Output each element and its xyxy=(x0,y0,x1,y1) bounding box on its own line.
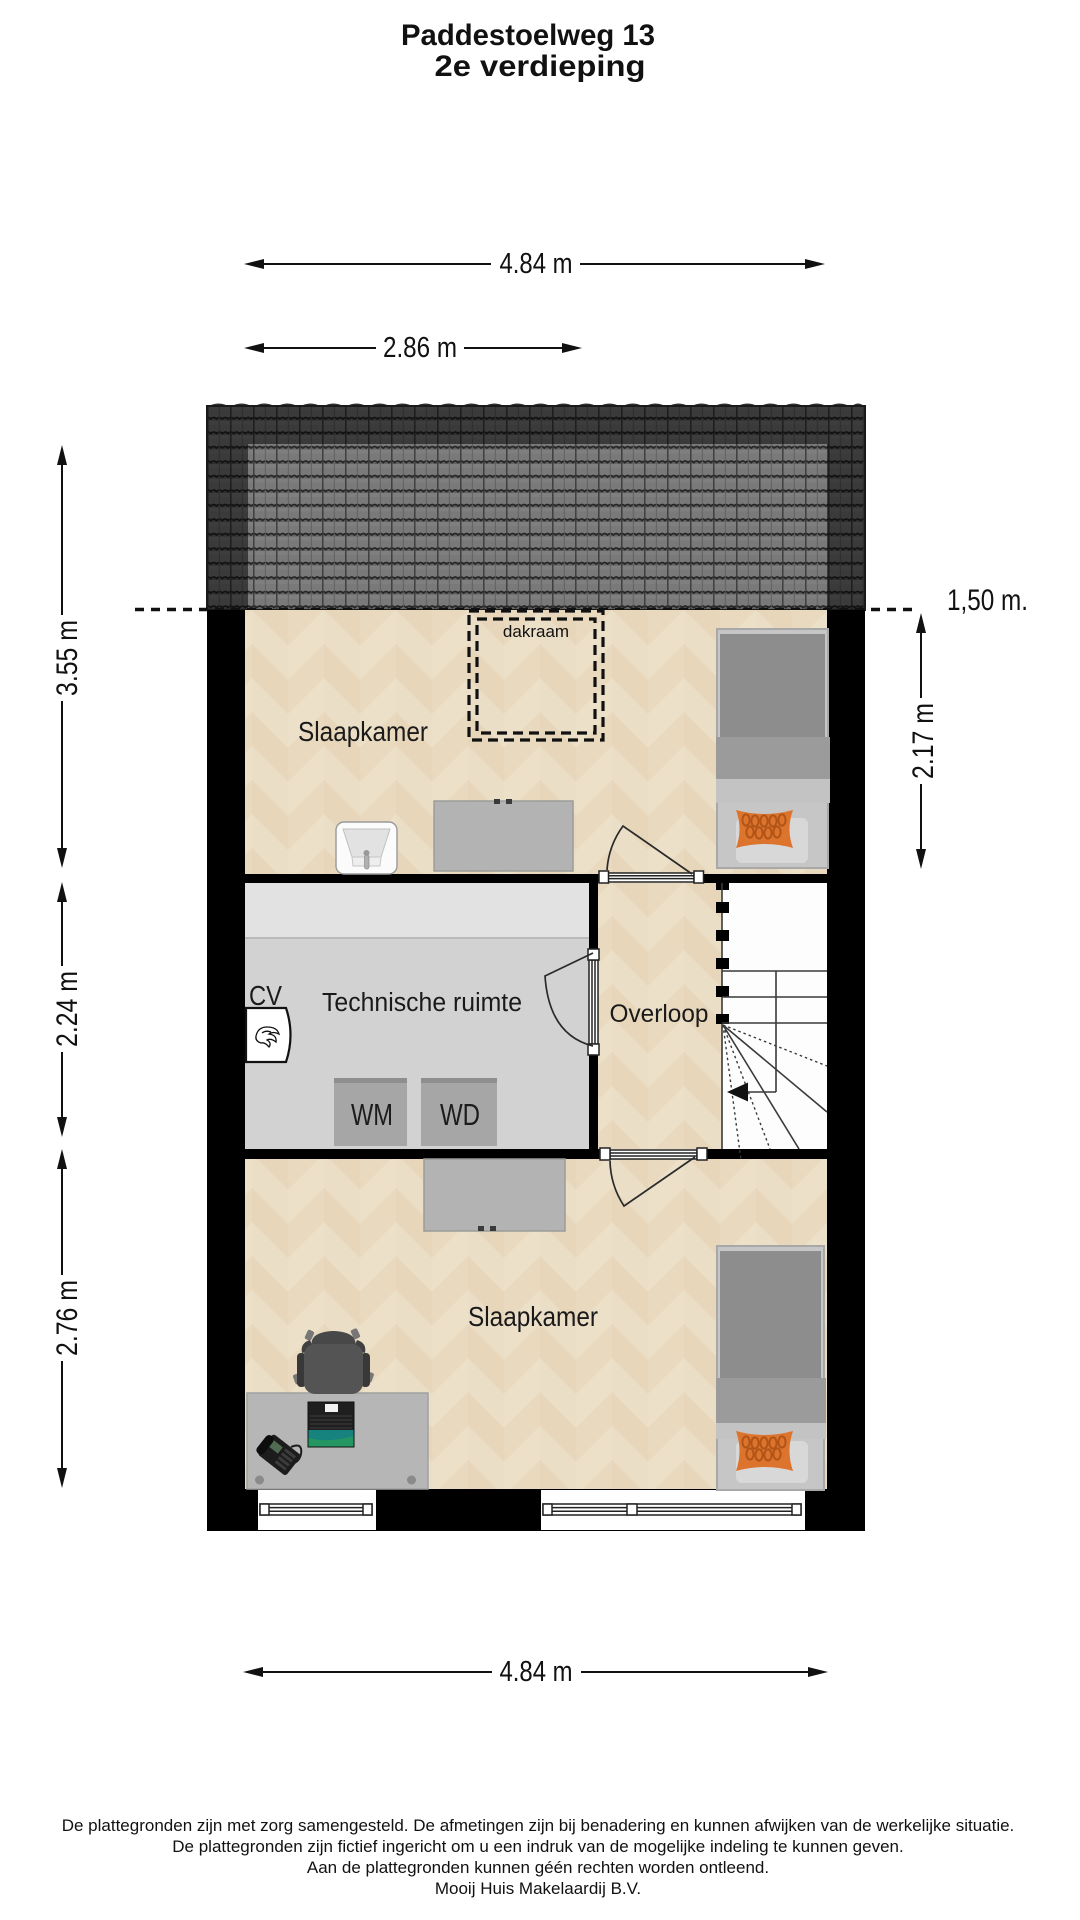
svg-text:2.76 m: 2.76 m xyxy=(51,1280,84,1356)
svg-text:4.84 m: 4.84 m xyxy=(500,1656,573,1688)
svg-text:dakraam: dakraam xyxy=(503,622,569,641)
svg-text:4.84 m: 4.84 m xyxy=(500,248,573,280)
svg-text:WD: WD xyxy=(440,1097,480,1132)
svg-text:Overloop: Overloop xyxy=(610,1000,709,1028)
svg-text:1,50 m.: 1,50 m. xyxy=(947,584,1028,617)
svg-text:2.17 m: 2.17 m xyxy=(907,703,940,779)
svg-text:De plattegronden zijn fictief: De plattegronden zijn fictief ingericht … xyxy=(172,1837,903,1856)
svg-text:Mooij Huis Makelaardij B.V.: Mooij Huis Makelaardij B.V. xyxy=(435,1879,641,1898)
svg-text:3.55 m: 3.55 m xyxy=(51,620,84,696)
svg-text:2.24 m: 2.24 m xyxy=(51,971,84,1047)
svg-text:De plattegronden zijn met zorg: De plattegronden zijn met zorg samengest… xyxy=(62,1816,1015,1835)
svg-text:Slaapkamer: Slaapkamer xyxy=(298,716,428,747)
svg-text:CV: CV xyxy=(249,980,282,1011)
svg-text:2e verdieping: 2e verdieping xyxy=(435,50,646,83)
svg-text:WM: WM xyxy=(351,1097,393,1132)
svg-text:Paddestoelweg 13: Paddestoelweg 13 xyxy=(401,19,655,52)
svg-text:2.86 m: 2.86 m xyxy=(383,332,457,364)
svg-text:Technische ruimte: Technische ruimte xyxy=(322,989,522,1017)
svg-text:Slaapkamer: Slaapkamer xyxy=(468,1301,598,1332)
svg-text:Aan de plattegronden kunnen gé: Aan de plattegronden kunnen géén rechten… xyxy=(307,1858,769,1877)
